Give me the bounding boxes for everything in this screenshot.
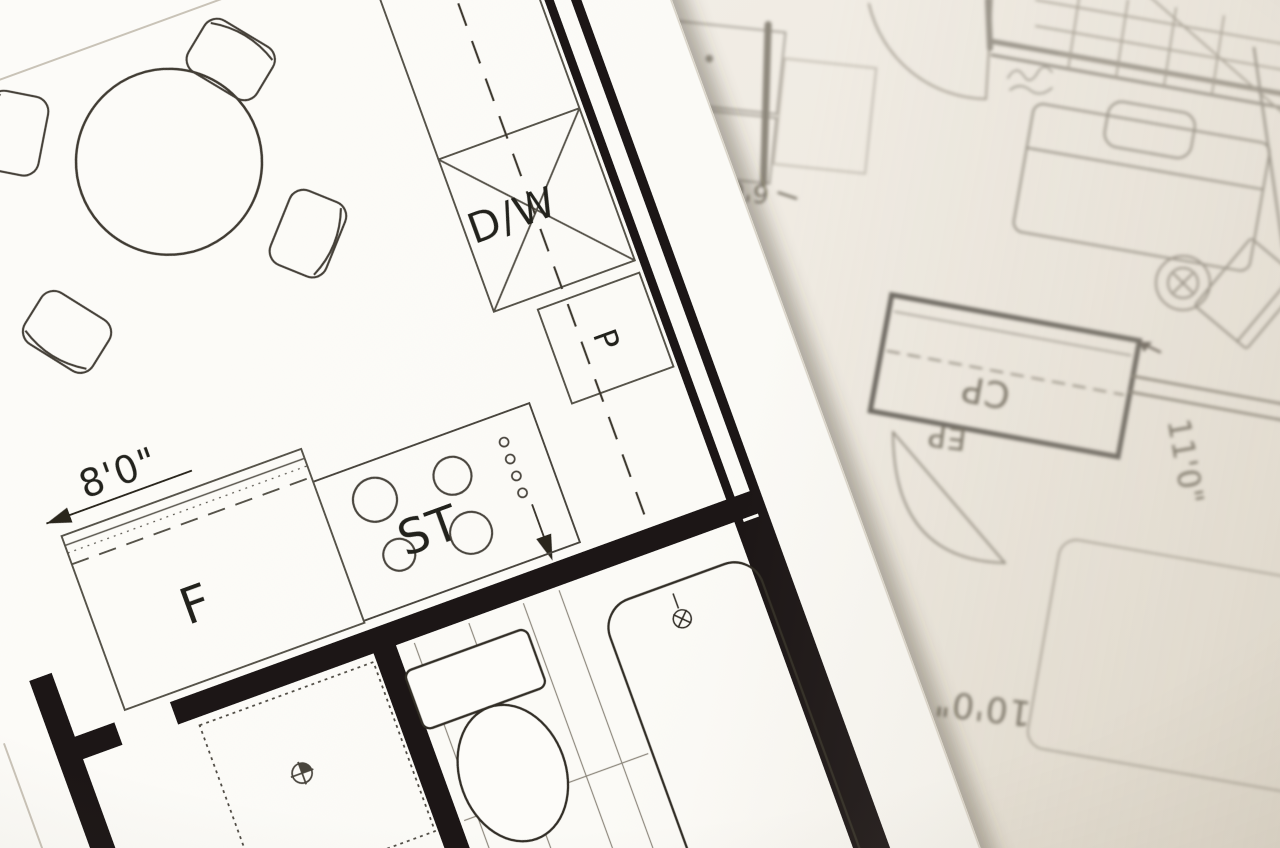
- blueprint-photo: F 6'0": [0, 0, 1280, 848]
- rear-closet-label: CP: [958, 366, 1014, 415]
- rear-entry-label: EP: [926, 417, 969, 456]
- blueprint-scene: F 6'0": [0, 0, 1280, 848]
